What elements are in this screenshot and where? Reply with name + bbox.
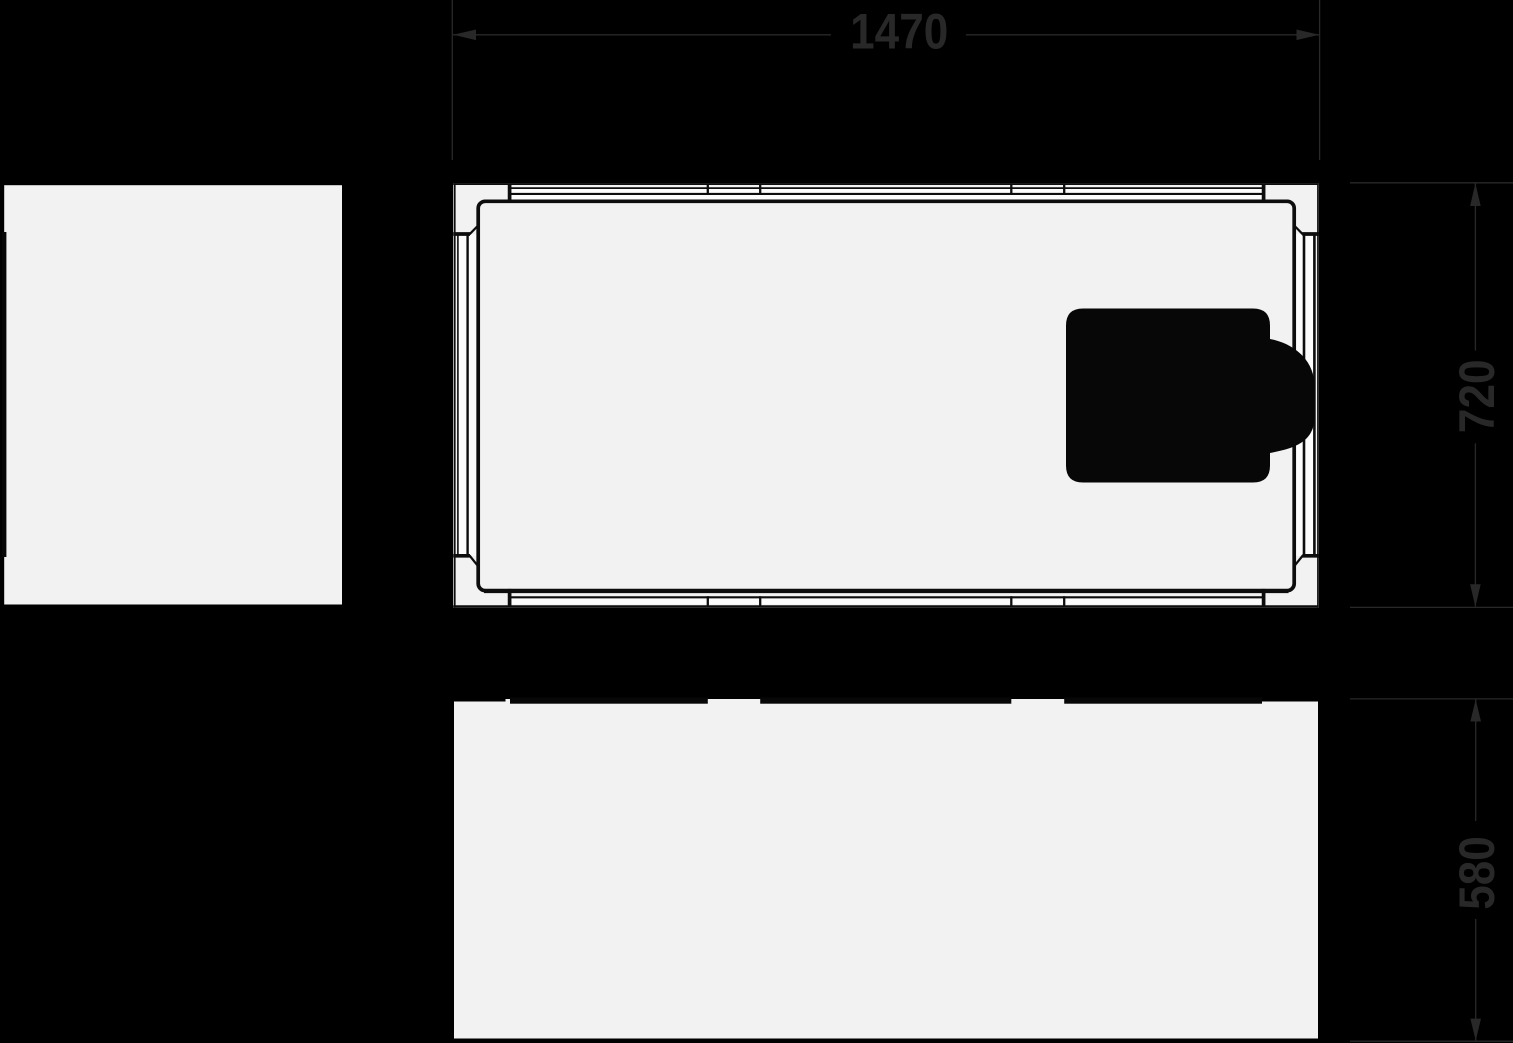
svg-text:1470: 1470 xyxy=(850,4,948,60)
svg-text:580: 580 xyxy=(1449,836,1505,910)
svg-text:720: 720 xyxy=(1449,360,1505,434)
